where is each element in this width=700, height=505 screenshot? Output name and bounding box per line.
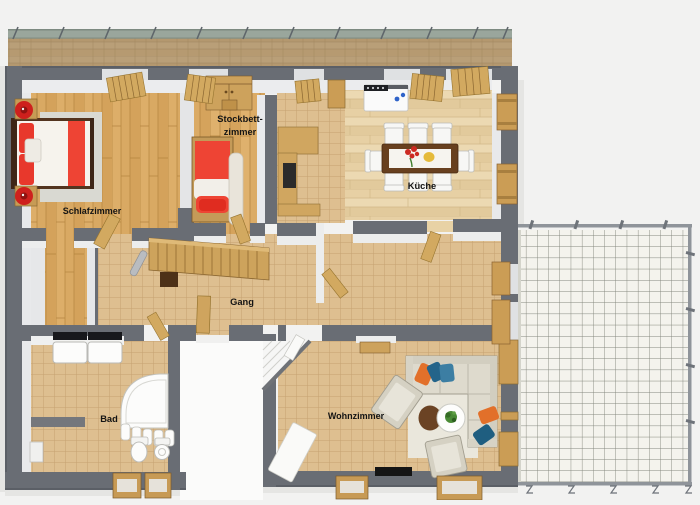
svg-text:Küche: Küche [408,181,436,191]
svg-text:Schlafzimmer: Schlafzimmer [63,206,122,216]
svg-text:zimmer: zimmer [224,127,257,137]
svg-text:Stockbett-: Stockbett- [217,114,262,124]
svg-text:Bad: Bad [100,414,118,424]
svg-text:Gang: Gang [230,297,254,307]
svg-text:Wohnzimmer: Wohnzimmer [328,411,385,421]
